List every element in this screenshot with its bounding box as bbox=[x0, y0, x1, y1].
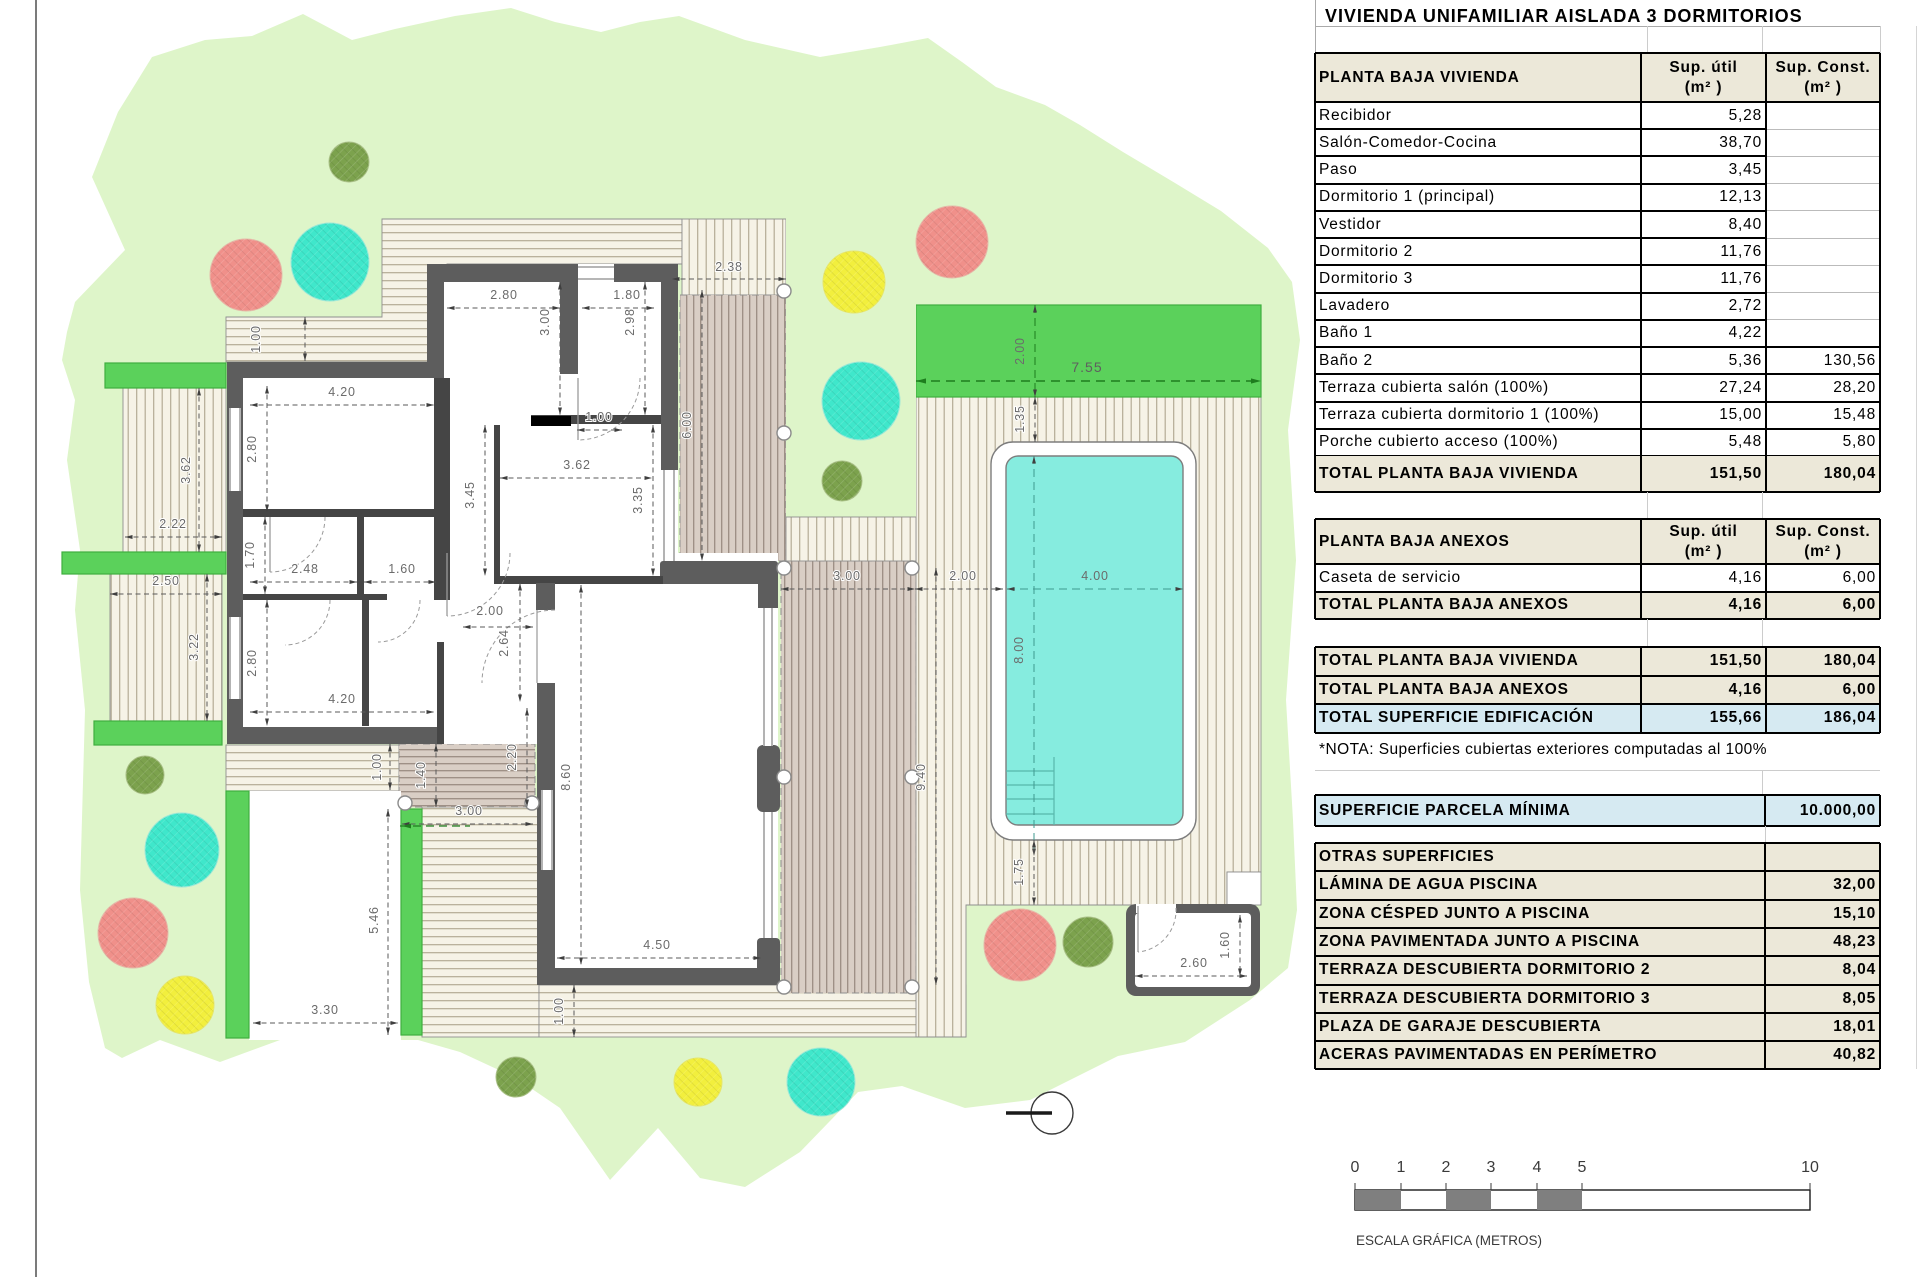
svg-text:0: 0 bbox=[1351, 1159, 1360, 1176]
svg-text:1.35: 1.35 bbox=[1013, 405, 1027, 433]
svg-text:5: 5 bbox=[1578, 1159, 1587, 1176]
svg-text:2.22: 2.22 bbox=[159, 517, 187, 531]
svg-text:1.60: 1.60 bbox=[1218, 931, 1232, 959]
svg-text:2.64: 2.64 bbox=[497, 629, 511, 657]
svg-text:2.80: 2.80 bbox=[245, 649, 259, 677]
svg-text:1.70: 1.70 bbox=[243, 541, 257, 569]
svg-text:ESCALA GRÁFICA (METROS): ESCALA GRÁFICA (METROS) bbox=[1356, 1233, 1542, 1248]
svg-text:1.40: 1.40 bbox=[414, 761, 428, 789]
svg-text:7.55: 7.55 bbox=[1071, 359, 1102, 375]
svg-text:2.80: 2.80 bbox=[490, 288, 518, 302]
svg-text:1.00: 1.00 bbox=[370, 753, 384, 781]
svg-text:3.62: 3.62 bbox=[179, 456, 193, 484]
svg-text:3.22: 3.22 bbox=[187, 633, 201, 661]
svg-text:8.00: 8.00 bbox=[1012, 636, 1026, 664]
svg-text:2.00: 2.00 bbox=[476, 604, 504, 618]
svg-text:4.50: 4.50 bbox=[643, 938, 671, 952]
svg-text:1: 1 bbox=[1397, 1159, 1406, 1176]
svg-text:3.62: 3.62 bbox=[563, 458, 591, 472]
svg-text:1.75: 1.75 bbox=[1012, 858, 1026, 886]
svg-text:2.20: 2.20 bbox=[505, 743, 519, 771]
svg-text:9.40: 9.40 bbox=[914, 763, 928, 791]
svg-text:2: 2 bbox=[1442, 1159, 1451, 1176]
svg-text:3.00: 3.00 bbox=[455, 804, 483, 818]
svg-text:4.00: 4.00 bbox=[1081, 569, 1109, 583]
svg-text:2.50: 2.50 bbox=[152, 574, 180, 588]
svg-text:2.48: 2.48 bbox=[291, 562, 319, 576]
svg-text:5.46: 5.46 bbox=[367, 906, 381, 934]
svg-text:3.45: 3.45 bbox=[463, 481, 477, 509]
svg-text:3.35: 3.35 bbox=[631, 486, 645, 514]
svg-text:2.80: 2.80 bbox=[245, 435, 259, 463]
svg-text:3.30: 3.30 bbox=[311, 1003, 339, 1017]
svg-text:2.38: 2.38 bbox=[715, 260, 743, 274]
svg-text:2.00: 2.00 bbox=[949, 569, 977, 583]
svg-text:3: 3 bbox=[1487, 1159, 1496, 1176]
svg-text:1.00: 1.00 bbox=[585, 410, 613, 424]
svg-text:10: 10 bbox=[1801, 1159, 1819, 1176]
svg-text:1.00: 1.00 bbox=[249, 325, 263, 353]
svg-text:2.60: 2.60 bbox=[1180, 956, 1208, 970]
svg-text:4.20: 4.20 bbox=[328, 692, 356, 706]
svg-text:6.00: 6.00 bbox=[680, 411, 694, 439]
svg-text:1.60: 1.60 bbox=[388, 562, 416, 576]
svg-text:2.98: 2.98 bbox=[623, 308, 637, 336]
svg-text:8.60: 8.60 bbox=[559, 763, 573, 791]
svg-text:3.00: 3.00 bbox=[538, 308, 552, 336]
svg-text:3.00: 3.00 bbox=[833, 569, 861, 583]
svg-text:1.00: 1.00 bbox=[552, 997, 566, 1025]
svg-text:2.00: 2.00 bbox=[1013, 337, 1027, 365]
svg-text:4.20: 4.20 bbox=[328, 385, 356, 399]
svg-text:1.80: 1.80 bbox=[613, 288, 641, 302]
svg-text:4: 4 bbox=[1533, 1159, 1542, 1176]
